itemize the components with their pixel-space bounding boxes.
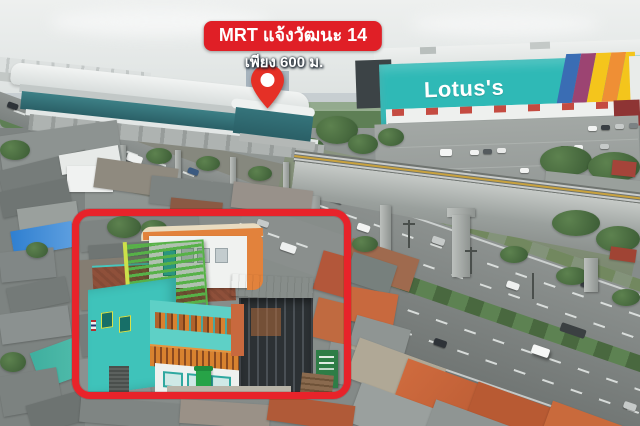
highlight-box [72, 209, 351, 399]
car [601, 125, 610, 130]
house-roof [179, 399, 270, 426]
van [440, 149, 452, 156]
car [520, 168, 529, 173]
tree [378, 128, 404, 146]
tree [352, 236, 378, 252]
car [470, 150, 479, 155]
tree [500, 246, 528, 263]
tree [26, 242, 48, 258]
banner-subtitle: เพียง 600 ม. [245, 50, 324, 74]
tree [0, 140, 30, 160]
tree [146, 148, 172, 164]
lotus-rooftop-unit [530, 42, 550, 50]
banner-title: MRT แจ้งวัฒนะ 14 [219, 25, 367, 45]
tree [248, 166, 272, 181]
tree [348, 134, 378, 154]
tree [196, 156, 220, 171]
tree [552, 210, 600, 236]
power-pole-arm [403, 223, 415, 225]
car [623, 401, 638, 412]
car [615, 124, 624, 129]
house-roof [79, 396, 181, 426]
banner: MRT แจ้งวัฒนะ 14 [204, 21, 382, 51]
car [588, 126, 597, 131]
pin-center-dot [261, 73, 275, 87]
car [483, 149, 492, 154]
cloud [410, 12, 600, 36]
car [600, 144, 609, 149]
car [433, 338, 448, 349]
lotus-logo-text: Lotus's [424, 75, 505, 104]
power-pole [532, 273, 534, 299]
car [531, 344, 551, 358]
tree [0, 352, 26, 372]
tree [612, 289, 640, 306]
guideway-pillar [452, 215, 470, 277]
guideway-pillar [584, 258, 598, 292]
aerial-photo: Lotus's [0, 0, 640, 426]
red-roof-house [611, 160, 636, 177]
power-pole-arm [465, 250, 477, 252]
car [629, 123, 638, 128]
lotus-rooftop-unit [420, 47, 436, 55]
car [506, 280, 521, 291]
car [497, 148, 506, 153]
